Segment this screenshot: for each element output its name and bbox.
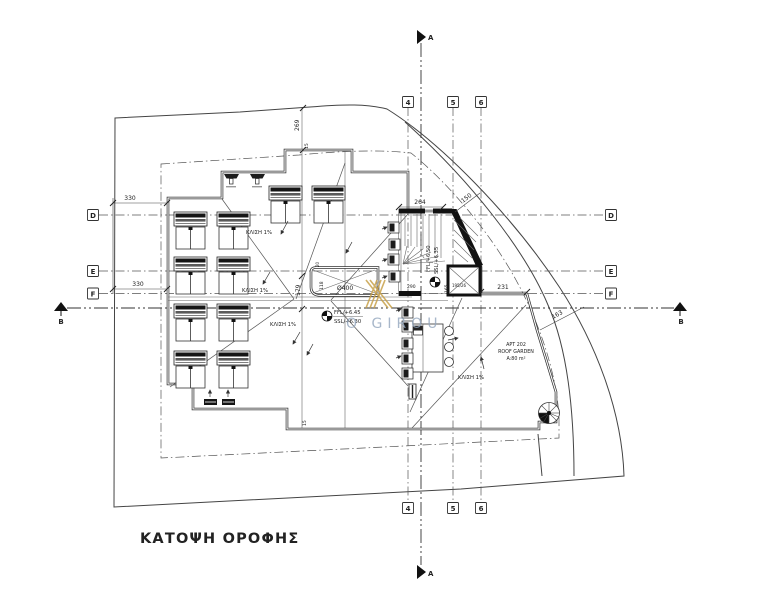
stool bbox=[445, 343, 454, 352]
apartment-label: APT 202 ROOF GARDEN A:80 m² bbox=[498, 342, 534, 362]
watermark-logo-icon bbox=[366, 280, 392, 308]
svg-text:A: A bbox=[428, 34, 434, 42]
level-stair-ffl: FFL/+6.50 bbox=[426, 245, 432, 272]
grid-bubble-6-bottom: 6 bbox=[476, 503, 487, 514]
spiral-stair-icon bbox=[539, 403, 560, 424]
svg-text:5: 5 bbox=[451, 505, 456, 513]
svg-text:6: 6 bbox=[479, 99, 484, 107]
dim-shaft: 195/26 bbox=[452, 283, 467, 288]
grid-lines bbox=[67, 43, 674, 565]
dim-163: 163 bbox=[551, 309, 565, 321]
dim-179: 179 bbox=[295, 284, 302, 296]
grid-bubble-E-left: E bbox=[88, 266, 99, 277]
dim-269: 269 bbox=[294, 119, 301, 131]
grid-bubble-D-left: D bbox=[88, 210, 99, 221]
dim-165: 165 bbox=[444, 284, 450, 293]
svg-text:F: F bbox=[91, 291, 96, 299]
watermark-text: O GIROU bbox=[346, 316, 442, 332]
svg-text:4: 4 bbox=[406, 505, 411, 513]
grid-bubble-4-bottom: 4 bbox=[403, 503, 414, 514]
svg-text:F: F bbox=[609, 291, 614, 299]
grid-bubble-5-top: 5 bbox=[448, 97, 459, 108]
svg-text:B: B bbox=[58, 318, 63, 326]
svg-text:4: 4 bbox=[406, 99, 411, 107]
dim-15-top: 15 bbox=[304, 143, 310, 149]
svg-text:D: D bbox=[90, 212, 96, 220]
stool bbox=[445, 327, 454, 336]
level-marker-stair: FFL/+6.50 SSL/+6.35 bbox=[426, 245, 440, 287]
grid-bubble-F-right: F bbox=[606, 288, 617, 299]
slope-label-2: ΚΛΙΣΗ 1% bbox=[242, 288, 268, 294]
apt-area: A:80 m² bbox=[506, 356, 525, 362]
section-marker-A-bottom: A bbox=[417, 565, 434, 579]
section-marker-B-left: B bbox=[54, 302, 68, 326]
grid-bubble-E-right: E bbox=[606, 266, 617, 277]
svg-text:5: 5 bbox=[451, 99, 456, 107]
stair-wall-units bbox=[382, 222, 400, 282]
diagonal-wall bbox=[450, 209, 483, 267]
slope-labels: ΚΛΙΣΗ 1% ΚΛΙΣΗ 1% ΚΛΙΣΗ 1% ΚΛΙΣΗ 1% bbox=[242, 221, 484, 381]
roof-plan-canvas: 330 330 269 15 264 150 231 163 179 290 1… bbox=[0, 0, 768, 608]
slope-label-3: ΚΛΙΣΗ 1% bbox=[270, 322, 296, 328]
dim-231: 231 bbox=[497, 284, 509, 291]
apt-type: ROOF GARDEN bbox=[498, 349, 534, 355]
svg-text:B: B bbox=[678, 318, 683, 326]
dim-20: 20 bbox=[315, 261, 320, 267]
dim-15-bottom: 15 bbox=[302, 420, 308, 426]
svg-text:A: A bbox=[428, 570, 434, 578]
svg-text:6: 6 bbox=[479, 505, 484, 513]
section-marker-A-top: A bbox=[417, 30, 434, 44]
apt-number: APT 202 bbox=[506, 342, 526, 348]
svg-text:E: E bbox=[91, 268, 96, 276]
dim-290: 290 bbox=[407, 284, 416, 290]
level-stair-ssl: SSL/+6.35 bbox=[434, 247, 440, 274]
section-marker-B-right: B bbox=[673, 302, 687, 326]
drawing-title: ΚΑΤΟΨΗ ΟΡΟΦΗΣ bbox=[140, 531, 299, 547]
dim-330-bottom: 330 bbox=[132, 281, 144, 288]
dim-400: Ø400 bbox=[337, 285, 353, 292]
grid-bubble-5-bottom: 5 bbox=[448, 503, 459, 514]
slope-label-1: ΚΛΙΣΗ 1% bbox=[246, 230, 272, 236]
roof-plan-page: 330 330 269 15 264 150 231 163 179 290 1… bbox=[0, 0, 768, 608]
grid-bubble-4-top: 4 bbox=[403, 97, 414, 108]
dim-118: 118 bbox=[319, 281, 325, 290]
elevator-shaft bbox=[448, 266, 480, 295]
dim-330-top: 330 bbox=[124, 195, 136, 202]
slope-label-4: ΚΛΙΣΗ 1% bbox=[458, 375, 484, 381]
svg-text:E: E bbox=[609, 268, 614, 276]
grid-bubble-6-top: 6 bbox=[476, 97, 487, 108]
grid-bubble-D-right: D bbox=[606, 210, 617, 221]
dim-264: 264 bbox=[414, 199, 426, 206]
svg-text:D: D bbox=[608, 212, 614, 220]
stool bbox=[445, 358, 454, 367]
grid-bubble-F-left: F bbox=[88, 288, 99, 299]
section-markers: A A B B bbox=[54, 30, 687, 579]
